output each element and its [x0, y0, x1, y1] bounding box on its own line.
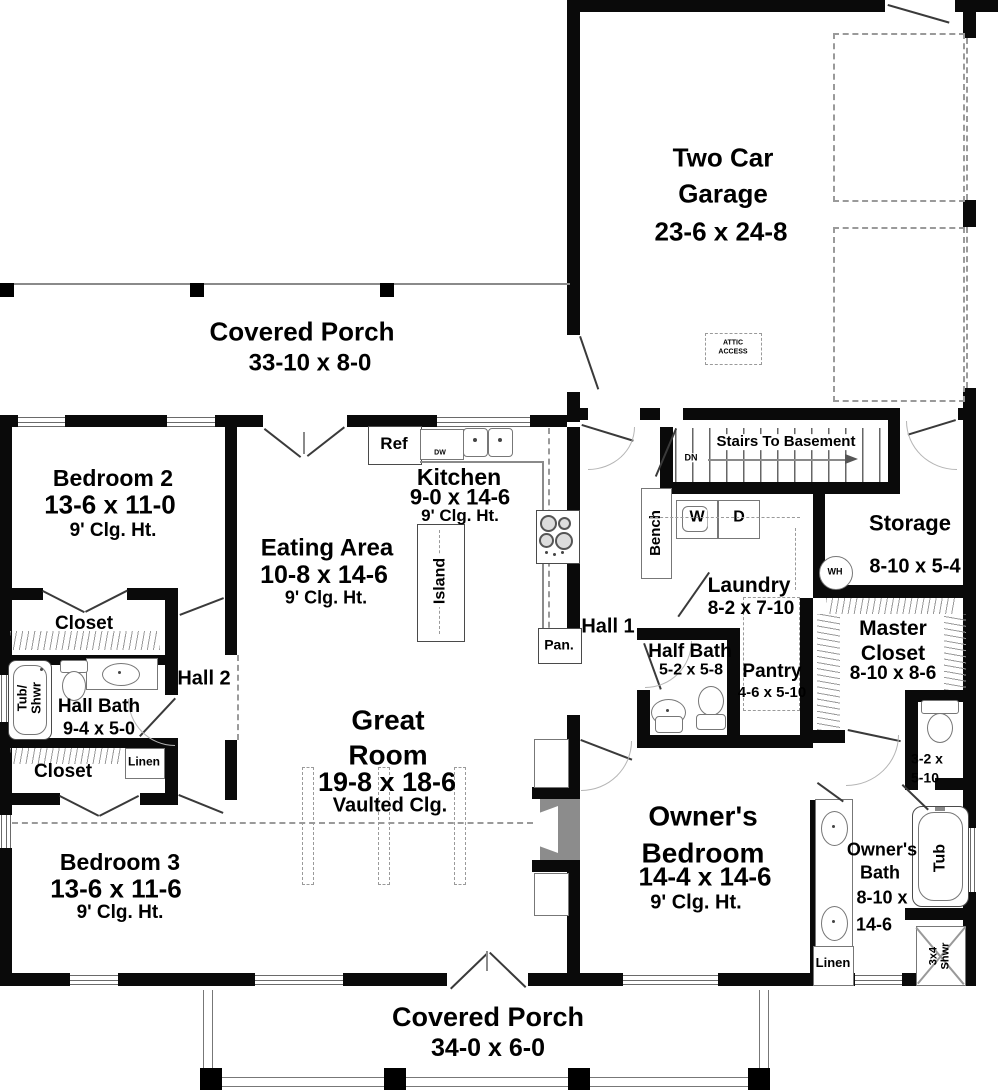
- great-room-name-2: Room: [348, 740, 427, 769]
- water-heater-label: WH: [828, 567, 843, 576]
- toilet-tank: [921, 700, 959, 714]
- wall-segment: [905, 908, 976, 920]
- refrigerator-label: Ref: [380, 435, 407, 453]
- wall-segment: [637, 735, 813, 748]
- bedroom2-dims: 13-6 x 11-0: [44, 491, 176, 518]
- porch-post: [380, 283, 394, 297]
- hall1-name: Hall 1: [581, 617, 634, 638]
- faucet: [473, 438, 477, 442]
- door-leaf: [178, 794, 223, 814]
- kitchen-dims: 9-0 x 14-6: [410, 485, 510, 508]
- faucet: [40, 668, 43, 671]
- faucet: [832, 920, 835, 923]
- bedroom2-name: Bedroom 2: [53, 466, 173, 490]
- closet-shelving: [944, 614, 966, 690]
- window: [437, 417, 530, 427]
- tub-label: Tub: [933, 844, 950, 872]
- fireplace-cabinet: [534, 739, 569, 788]
- kitchen-sink: [488, 428, 513, 457]
- wall-segment: [343, 973, 447, 986]
- eating-name: Eating Area: [261, 535, 393, 560]
- counter-edge: [420, 461, 544, 463]
- closet1-name: Closet: [55, 614, 113, 634]
- fireplace: [532, 787, 580, 799]
- wall-segment: [225, 600, 237, 655]
- kitchen-clg: 9' Clg. Ht.: [421, 507, 499, 525]
- porch-post: [568, 1068, 590, 1090]
- stairs-arrow-head: [845, 454, 858, 464]
- window: [255, 975, 343, 985]
- garage-name-2: Garage: [678, 180, 768, 207]
- porch-bottom-dims: 34-0 x 6-0: [431, 1035, 545, 1061]
- wall-segment: [580, 0, 885, 12]
- pantry-name: Pantry: [742, 662, 801, 682]
- burner: [540, 515, 557, 532]
- appliance-dashed-line: [795, 528, 796, 590]
- window: [70, 975, 118, 985]
- faucet: [498, 438, 502, 442]
- toilet: [927, 713, 953, 743]
- burner: [539, 533, 554, 548]
- appliance-dashed-line: [650, 517, 800, 518]
- island-label: Island: [433, 555, 450, 607]
- fireplace-firebox: [540, 806, 558, 853]
- wall-segment: [888, 420, 900, 494]
- window: [623, 975, 718, 985]
- porch-post: [190, 283, 204, 297]
- laundry-name: Laundry: [708, 575, 791, 597]
- fireplace: [532, 860, 580, 872]
- bedroom2-clg: 9' Clg. Ht.: [70, 521, 157, 541]
- wall-segment: [65, 415, 167, 427]
- garage-door-line: [966, 38, 968, 200]
- owners-bath-dims-2: 14-6: [856, 916, 892, 935]
- shower-label-line1: 3x4: [928, 943, 940, 970]
- pantry-cabinet-label: Pan.: [544, 638, 574, 653]
- owners-bath-name-2: Bath: [860, 864, 900, 883]
- wall-segment: [958, 408, 976, 420]
- wall-segment: [165, 600, 178, 695]
- wall-segment: [225, 427, 237, 600]
- door-arc: [581, 741, 632, 791]
- storage-name: Storage: [869, 511, 951, 534]
- half-bath-name: Half Bath: [648, 642, 731, 662]
- owners-bedroom-name-1: Owner's: [648, 801, 757, 830]
- bifold-door: [85, 590, 128, 613]
- door-arc: [906, 421, 957, 470]
- shower-label-line2: Shwr: [940, 943, 952, 970]
- burner: [555, 532, 573, 550]
- toilet-tank: [696, 714, 726, 730]
- faucet: [935, 807, 945, 811]
- closet-shelving: [817, 614, 840, 730]
- bifold-door: [42, 590, 85, 613]
- owners-bedroom-clg: 9' Clg. Ht.: [650, 893, 741, 914]
- cooktop-knob: [553, 553, 556, 556]
- window: [167, 417, 215, 427]
- wall-segment: [955, 0, 998, 12]
- garage-name-1: Two Car: [673, 144, 774, 171]
- hall2-name: Hall 2: [177, 669, 230, 690]
- great-room-name-1: Great: [351, 705, 424, 734]
- owners-bedroom-dims: 14-4 x 14-6: [639, 863, 772, 890]
- porch-post: [384, 1068, 406, 1090]
- dishwasher-label: DW: [434, 449, 446, 456]
- door-arc: [588, 427, 635, 470]
- window: [1, 815, 11, 848]
- ceiling-line-dashed: [237, 655, 239, 740]
- wall-segment: [127, 588, 178, 600]
- floor-plan: ATTIC ACCESS Covered Porch 33-10 x 8-0: [0, 0, 1000, 1090]
- wc-dims-2: 5-10: [911, 771, 939, 786]
- eating-clg: 9' Clg. Ht.: [285, 589, 367, 608]
- porch-post: [200, 1068, 222, 1090]
- porch-post: [748, 1068, 770, 1090]
- attic-access-label: ACCESS: [718, 348, 747, 355]
- owners-bath-dims-1: 8-10 x: [856, 889, 907, 908]
- garage-bay-dashed: [833, 33, 965, 202]
- washer-label: W: [686, 510, 707, 527]
- garage-bay-dashed: [833, 227, 965, 402]
- sink: [821, 906, 848, 941]
- toilet: [698, 686, 724, 716]
- wall-segment: [225, 740, 237, 800]
- bedroom3-name: Bedroom 3: [60, 850, 180, 874]
- wall-segment: [0, 793, 60, 805]
- tub-shwr-label: Tub/ Shwr: [15, 682, 42, 714]
- faucet: [832, 825, 835, 828]
- porch-bottom-name: Covered Porch: [392, 1003, 584, 1031]
- wall-segment: [0, 588, 43, 600]
- sink-pedestal: [655, 716, 683, 733]
- tub-shwr-label-line1: Tub/: [15, 682, 29, 714]
- stairs-dn-label: DN: [682, 453, 701, 462]
- porch-top-name: Covered Porch: [210, 318, 395, 345]
- door-leaf: [579, 336, 599, 390]
- wall-segment: [0, 848, 12, 985]
- pantry-dims: 4-6 x 5-10: [738, 685, 806, 701]
- shower-label: 3x4 Shwr: [928, 943, 951, 970]
- door-center-line: [486, 951, 488, 971]
- garage-dims: 23-6 x 24-8: [655, 218, 788, 245]
- stairs-label: Stairs To Basement: [714, 434, 859, 450]
- wall-segment: [530, 415, 567, 427]
- porch-edge: [0, 283, 570, 285]
- garage-door-line: [966, 227, 968, 388]
- wall-segment: [118, 973, 255, 986]
- door-leaf: [677, 572, 710, 617]
- storage-dims: 8-10 x 5-4: [869, 557, 960, 578]
- wall-segment: [640, 408, 660, 420]
- hall-bath-dims: 9-4 x 5-0: [63, 720, 135, 739]
- wall-segment: [660, 482, 900, 494]
- wall-segment: [0, 973, 70, 986]
- sink: [102, 663, 140, 686]
- window: [18, 417, 65, 427]
- tub-shwr-label-line2: Shwr: [29, 682, 43, 714]
- door-arc: [846, 735, 899, 786]
- great-room-dims: 19-8 x 18-6: [318, 768, 456, 796]
- bifold-door: [59, 795, 99, 817]
- porch-top-dims: 33-10 x 8-0: [249, 350, 372, 375]
- cooktop-knob: [561, 551, 564, 554]
- wall-segment: [813, 730, 845, 743]
- bedroom3-clg: 9' Clg. Ht.: [77, 903, 164, 923]
- linen-label: Linen: [816, 956, 851, 970]
- wall-segment: [800, 598, 813, 737]
- stairs-arrow: [708, 459, 846, 461]
- wall-segment: [637, 628, 740, 640]
- eating-dims: 10-8 x 14-6: [260, 562, 388, 588]
- wall-segment: [567, 408, 588, 420]
- linen-label: Linen: [128, 756, 160, 769]
- porch-railing: [759, 990, 769, 1076]
- beam-dashed: [302, 767, 314, 885]
- hall-bath-name: Hall Bath: [58, 697, 140, 717]
- great-room-clg: Vaulted Clg.: [333, 796, 447, 817]
- closet2-name: Closet: [34, 762, 92, 782]
- wall-segment: [215, 415, 263, 427]
- dryer-label: D: [730, 510, 748, 527]
- door-leaf: [307, 426, 345, 457]
- door-leaf: [450, 953, 487, 989]
- kitchen-sink: [463, 428, 488, 457]
- master-closet-name-2: Closet: [861, 643, 925, 665]
- door-leaf: [264, 428, 301, 458]
- attic-access-label: ATTIC: [723, 339, 743, 346]
- half-bath-dims: 5-2 x 5-8: [659, 663, 723, 680]
- sink: [821, 811, 848, 846]
- master-closet-dims: 8-10 x 8-6: [850, 664, 937, 684]
- wall-segment: [935, 778, 976, 790]
- porch-post: [0, 283, 14, 297]
- master-closet-name-1: Master: [859, 618, 927, 640]
- faucet: [666, 709, 669, 712]
- window: [855, 975, 902, 985]
- fireplace-cabinet: [534, 873, 569, 916]
- burner: [558, 517, 571, 530]
- cooktop-knob: [545, 551, 548, 554]
- wall-segment: [637, 690, 650, 738]
- porch-railing: [203, 1077, 770, 1087]
- closet-shelving: [826, 598, 956, 614]
- wall-segment: [683, 408, 900, 420]
- door-leaf: [179, 597, 224, 616]
- wall-segment: [165, 745, 178, 800]
- door-center-line: [303, 432, 305, 454]
- bifold-door: [99, 795, 139, 817]
- door-leaf: [887, 4, 949, 24]
- laundry-dims: 8-2 x 7-10: [708, 599, 795, 619]
- bedroom3-dims: 13-6 x 11-6: [50, 875, 182, 902]
- wall-segment: [963, 200, 976, 227]
- porch-railing: [203, 990, 213, 1076]
- faucet: [118, 671, 121, 674]
- wc-dims-1: 3-2 x: [911, 752, 943, 767]
- door-leaf: [489, 952, 526, 988]
- owners-bath-name-1: Owner's: [847, 841, 917, 860]
